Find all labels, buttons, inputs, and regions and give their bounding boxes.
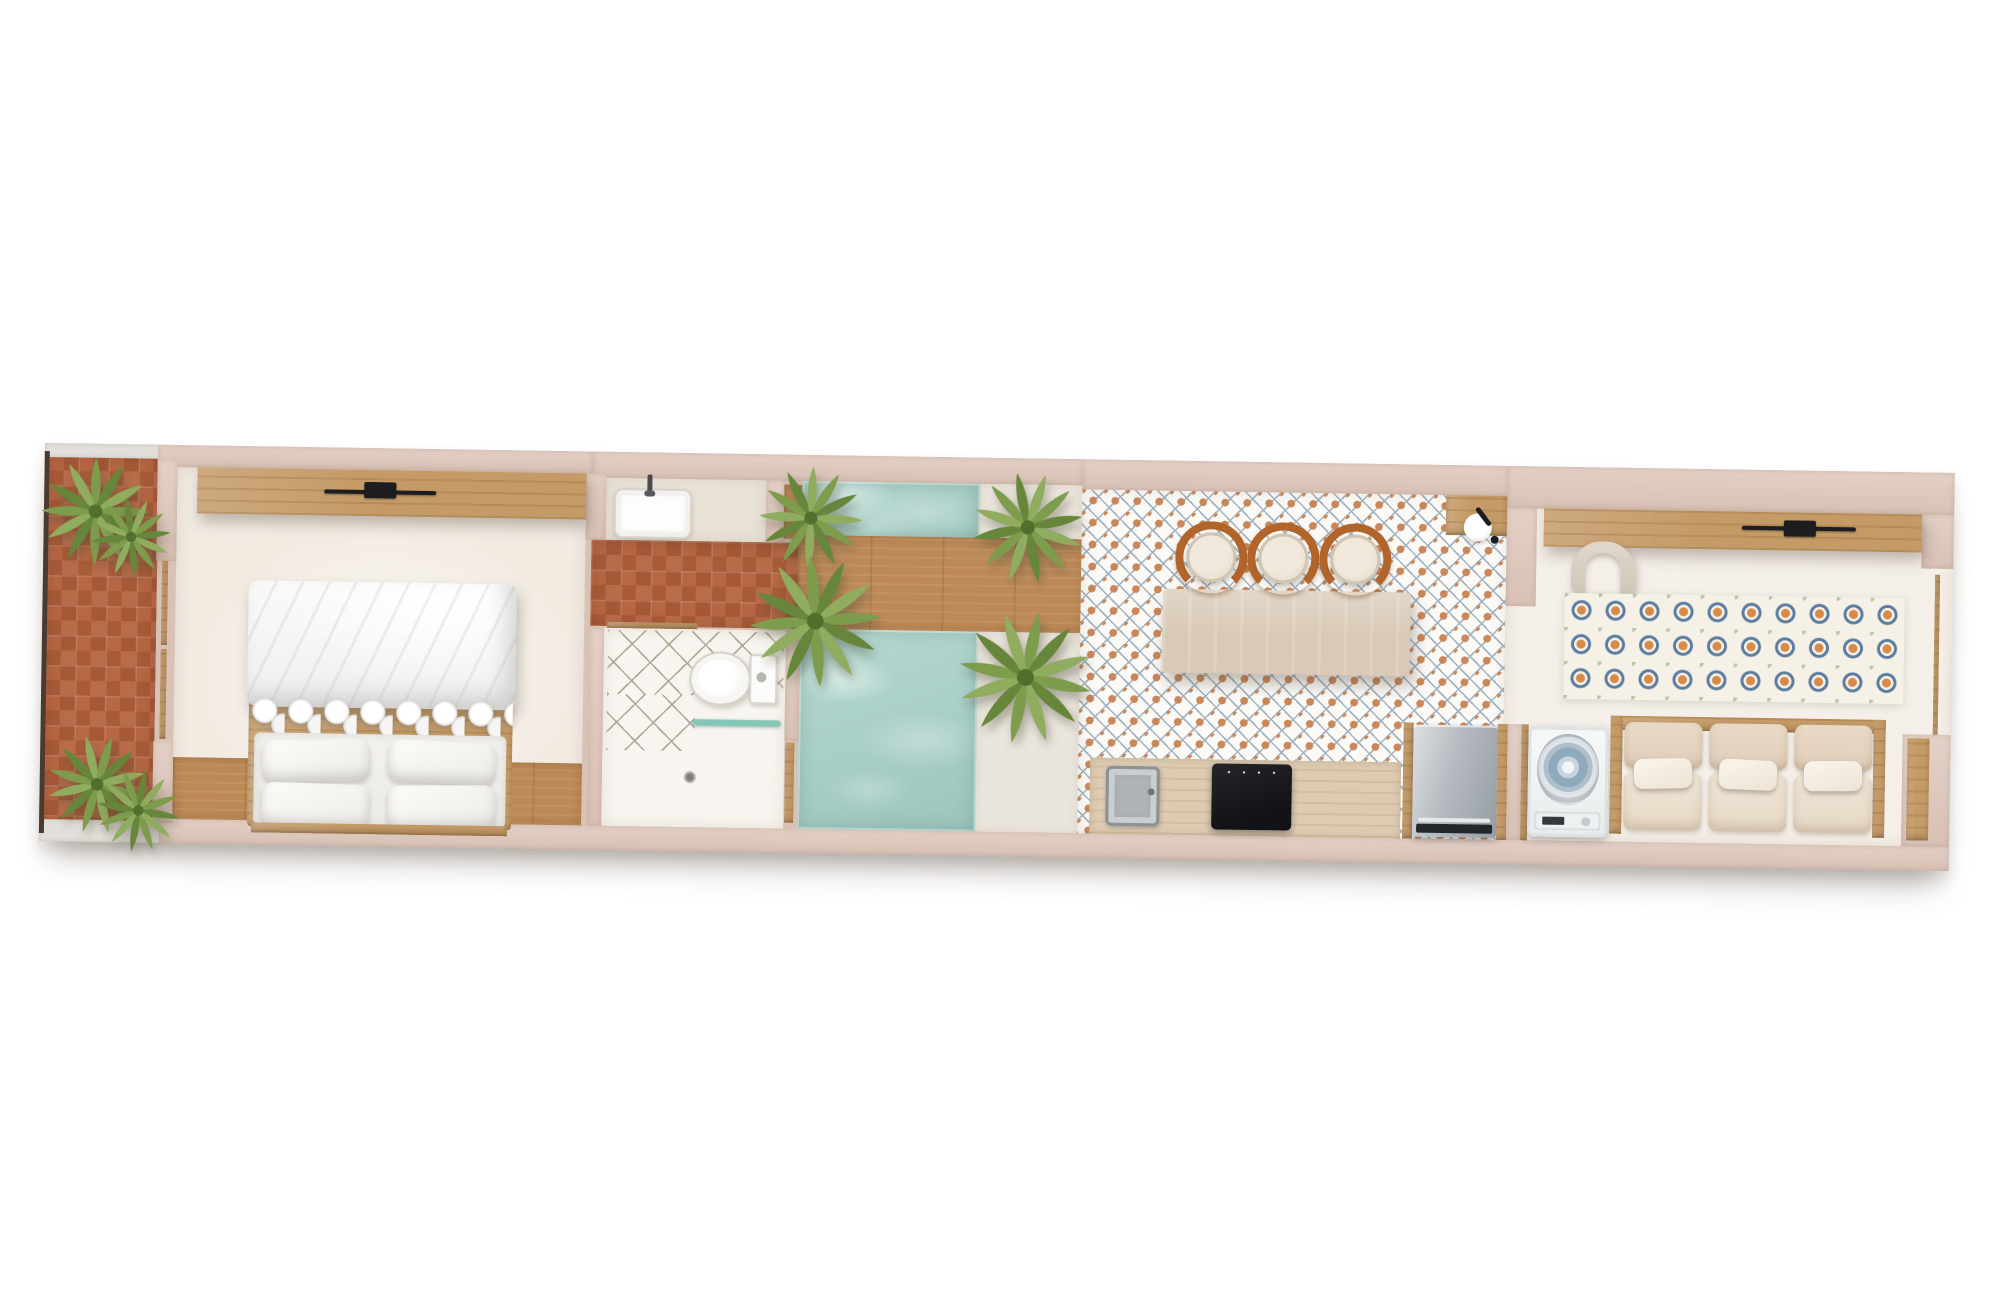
bed-pillow-1 [262,738,371,782]
pool-palm-3 [968,468,1088,588]
bathroom-door [784,743,794,823]
palm-plant-icon [72,477,191,596]
sofa-pillow-2 [1718,758,1777,791]
washing-machine [1527,726,1609,837]
palm-plant-icon [82,754,195,867]
bedroom-east-wall [586,474,607,540]
bed-duvet [247,580,517,710]
vanity-faucet-head [644,490,655,496]
living-wall-tv [1784,520,1816,537]
palm-plant-icon [941,593,1109,761]
sofa-arm-left [1609,716,1623,834]
sliding-glass-door-b [159,649,166,739]
armchair [1571,541,1636,594]
living-corner-wall-top-right [1921,514,1954,568]
sofa-pillow-3 [1804,761,1862,791]
dishwasher [1412,725,1498,838]
double-bed [245,580,517,834]
kitchen-sink [1105,766,1160,827]
washer-lid [1537,733,1600,805]
exterior-wall-top-living [1507,466,1955,515]
sofa [1609,716,1886,840]
floor-plan [39,443,1955,871]
bedroom-wall-tv [364,482,396,499]
terrace-plant-4 [94,766,183,855]
washer-control-panel [1534,811,1600,830]
bar-stool-3 [1319,523,1392,596]
screenshot-canvas [0,0,2000,1300]
pool-palm-2 [744,550,886,692]
side-console [1906,738,1930,840]
cooktop [1211,763,1292,830]
sofa-arm-right [1872,720,1886,838]
bar-stool-1 [1175,521,1248,594]
kitchen-sink-faucet [1148,788,1155,795]
bar-stool-2 [1247,522,1320,595]
kitchen-island [1162,589,1411,677]
sofa-pillow-1 [1634,758,1693,789]
bed-pillow-2 [387,739,497,786]
bathroom-lattice-tile-2 [606,694,695,751]
toilet-bowl [689,651,752,706]
terrace-plant-2 [88,494,174,580]
area-rug [1563,593,1905,704]
bed-pillow-4 [387,785,495,829]
kitchen-living-wall-pier [1506,508,1538,606]
pool-palm-4 [953,605,1097,749]
palm-plant-icon [740,546,890,696]
